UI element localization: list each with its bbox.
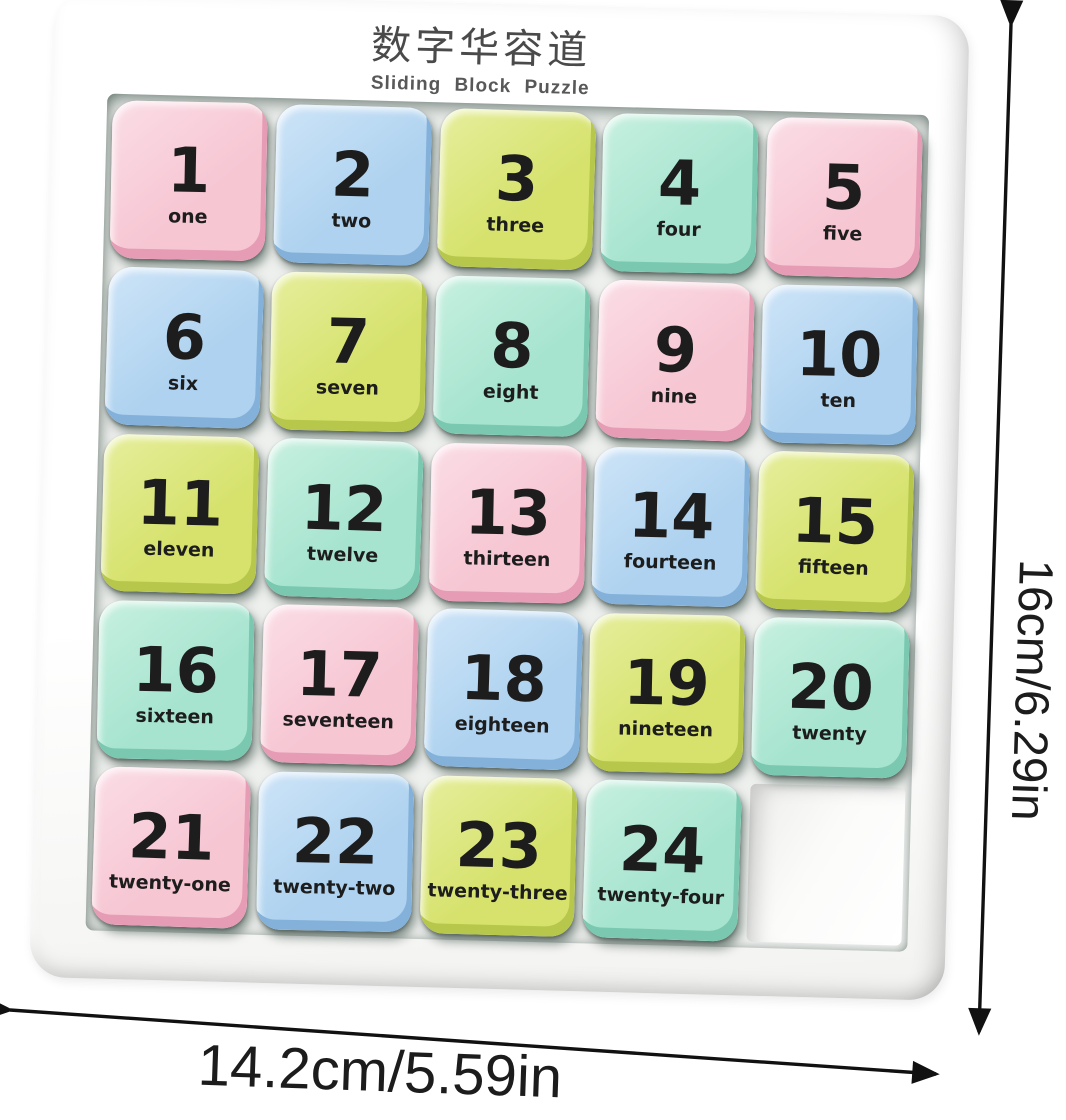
tile-word: twenty-two bbox=[273, 876, 396, 900]
tile-number: 5 bbox=[821, 156, 866, 219]
tile-word: seven bbox=[315, 376, 378, 399]
puzzle-tile-20: 20twenty bbox=[751, 617, 910, 779]
puzzle-tile-6: 6six bbox=[104, 266, 264, 429]
puzzle-tile-10: 10ten bbox=[760, 284, 918, 445]
tile-number: 4 bbox=[658, 152, 702, 215]
tile-number: 9 bbox=[653, 319, 698, 382]
puzzle-tile-8: 8eight bbox=[432, 275, 591, 437]
tile-word: twenty-four bbox=[598, 883, 725, 909]
tile-word: twenty-three bbox=[427, 879, 568, 905]
puzzle-tile-4: 4four bbox=[601, 113, 759, 274]
puzzle-tile-15: 15fifteen bbox=[755, 450, 915, 613]
puzzle-tile-11: 11eleven bbox=[100, 433, 259, 595]
tile-word: two bbox=[331, 209, 371, 232]
puzzle-tile-5: 5five bbox=[764, 117, 923, 279]
puzzle-tile-12: 12twelve bbox=[264, 437, 424, 600]
puzzle-tile-22: 22twenty-two bbox=[256, 771, 414, 932]
tile-word: twenty-one bbox=[109, 871, 232, 897]
tile-word: seventeen bbox=[282, 709, 394, 734]
tile-word: twenty bbox=[792, 722, 867, 746]
tile-number: 14 bbox=[627, 485, 715, 549]
tile-word: nineteen bbox=[618, 718, 713, 742]
puzzle-tile-18: 18eighteen bbox=[423, 608, 583, 771]
tile-word: one bbox=[168, 205, 208, 228]
tile-number: 10 bbox=[796, 323, 884, 387]
puzzle-tile-19: 19nineteen bbox=[588, 613, 746, 774]
tile-word: eight bbox=[483, 380, 539, 403]
tile-number: 16 bbox=[132, 639, 220, 703]
tile-word: fourteen bbox=[624, 551, 717, 575]
tile-word: thirteen bbox=[463, 547, 550, 571]
puzzle-tile-16: 16sixteen bbox=[96, 600, 254, 761]
tile-number: 19 bbox=[623, 652, 711, 716]
tile-number: 24 bbox=[619, 818, 707, 883]
puzzle-tile-1: 1one bbox=[110, 100, 268, 261]
puzzle-frame: 数字华容道 Sliding Block Puzzle 1one2two3thre… bbox=[29, 0, 969, 1001]
tile-number: 6 bbox=[162, 306, 207, 369]
tile-number: 13 bbox=[464, 481, 552, 545]
puzzle-title: 数字华容道 Sliding Block Puzzle bbox=[53, 4, 910, 108]
puzzle-tile-24: 24twenty-four bbox=[582, 779, 742, 942]
puzzle-tile-7: 7seven bbox=[269, 271, 427, 432]
puzzle-tile-14: 14fourteen bbox=[592, 446, 751, 608]
tile-word: sixteen bbox=[135, 705, 214, 729]
puzzle-tile-21: 21twenty-one bbox=[91, 766, 251, 929]
tile-word: four bbox=[657, 218, 702, 241]
tile-number: 12 bbox=[300, 476, 388, 541]
tile-word: eleven bbox=[143, 538, 215, 562]
puzzle-board: 1one2two3three4four5five6six7seven8eight… bbox=[86, 94, 930, 952]
tile-word: ten bbox=[820, 389, 856, 412]
puzzle-tile-2: 2two bbox=[273, 104, 432, 266]
tile-number: 8 bbox=[490, 314, 535, 377]
tile-number: 11 bbox=[136, 472, 224, 536]
puzzle-tile-9: 9nine bbox=[596, 279, 756, 442]
tile-word: five bbox=[823, 222, 863, 245]
height-dimension-label: 16cm/6.29in bbox=[992, 389, 1066, 991]
puzzle-tile-13: 13thirteen bbox=[428, 442, 586, 603]
tile-number: 2 bbox=[330, 143, 375, 206]
tile-number: 17 bbox=[296, 643, 384, 707]
width-dimension-label: 14.2cm/5.59in bbox=[29, 1024, 731, 1120]
tile-number: 21 bbox=[127, 805, 215, 870]
tile-word: fifteen bbox=[798, 555, 869, 579]
tile-number: 18 bbox=[459, 647, 547, 712]
puzzle-tile-17: 17seventeen bbox=[260, 604, 419, 766]
tile-number: 22 bbox=[291, 810, 379, 874]
tile-word: six bbox=[168, 372, 199, 395]
tile-number: 1 bbox=[167, 139, 211, 202]
tile-word: eighteen bbox=[454, 713, 550, 738]
tile-word: twelve bbox=[306, 542, 378, 566]
tile-number: 3 bbox=[494, 148, 539, 211]
tile-word: nine bbox=[651, 384, 698, 407]
puzzle-tile-23: 23twenty-three bbox=[419, 775, 578, 937]
tile-word: three bbox=[486, 213, 544, 237]
tile-number: 20 bbox=[787, 656, 875, 720]
puzzle-grid: 1one2two3three4four5five6six7seven8eight… bbox=[92, 100, 923, 946]
empty-slot bbox=[747, 784, 906, 946]
tile-number: 23 bbox=[455, 814, 543, 878]
tile-number: 7 bbox=[326, 310, 370, 373]
tile-number: 15 bbox=[791, 489, 879, 554]
puzzle-tile-3: 3three bbox=[436, 108, 596, 271]
